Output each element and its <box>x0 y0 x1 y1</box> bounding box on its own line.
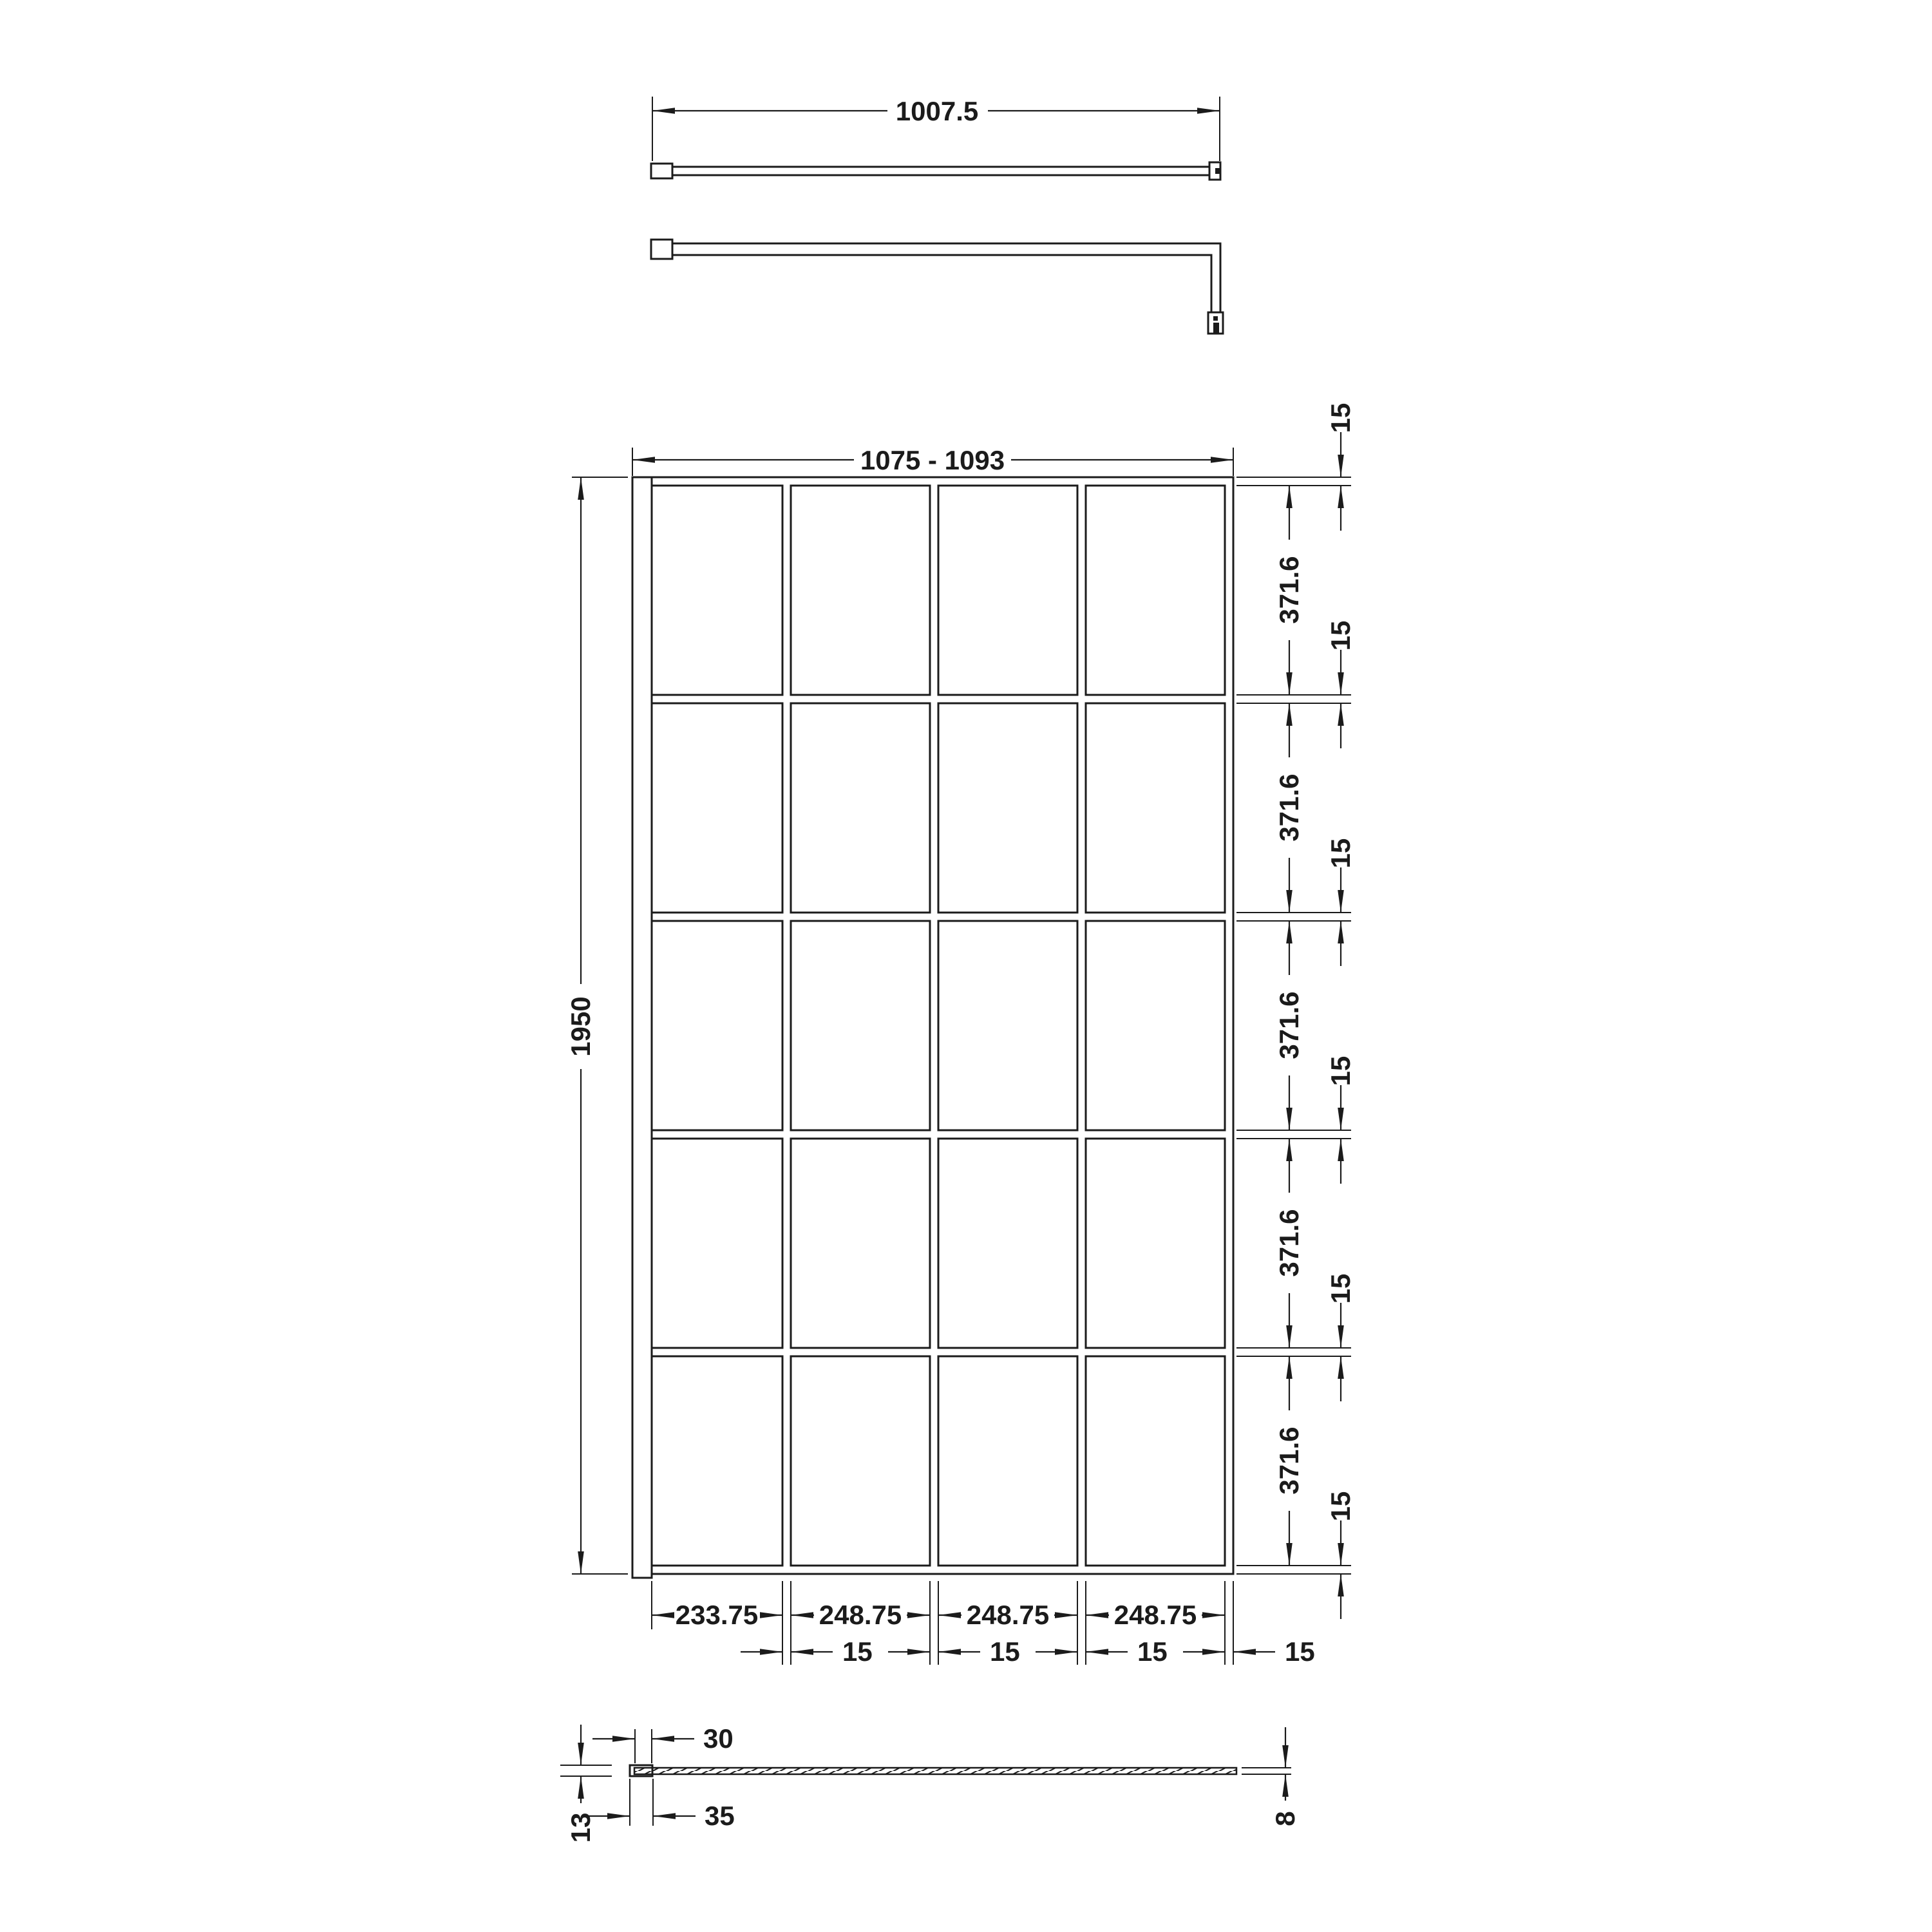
dim-text-rail: 15 <box>1325 1492 1356 1522</box>
dim-text-rail: 15 <box>1325 1056 1356 1086</box>
glass-pane <box>938 486 1077 695</box>
glass-pane <box>791 703 930 913</box>
support-arm-tube <box>672 243 1220 312</box>
glass-pane <box>791 1139 930 1348</box>
dim-text-rail: 15 <box>1325 403 1356 433</box>
dim-text-panel-width: 248.75 <box>967 1600 1049 1630</box>
dim-text-overall-width: 1075 - 1093 <box>860 445 1005 475</box>
dim-text-mullion: 15 <box>990 1636 1020 1667</box>
dim-text-bar-width: 1007.5 <box>896 96 978 126</box>
glass-pane <box>652 1356 782 1566</box>
glass-pane <box>1086 1139 1225 1348</box>
dim-text-mullion: 15 <box>842 1636 873 1667</box>
height-dimension: 1950 <box>565 477 628 1574</box>
glass-pane <box>652 486 782 695</box>
glass-pane <box>1086 703 1225 913</box>
dim-text-channel-opening: 30 <box>703 1723 734 1754</box>
glass-pane <box>938 703 1077 913</box>
glass-pane <box>1086 486 1225 695</box>
wall-fixing-block <box>651 240 672 259</box>
support-bar-tube <box>672 167 1209 175</box>
rail-thickness-dimensions: 15 15 15 15 15 15 <box>1325 403 1356 1619</box>
profile-plan-view: 30 35 13 8 <box>560 1723 1300 1842</box>
dim-text-channel-depth: 13 <box>565 1813 596 1843</box>
glass-panes <box>652 486 1225 1566</box>
dim-text-mullion: 15 <box>1137 1636 1168 1667</box>
dim-text-panel-width: 233.75 <box>676 1600 758 1630</box>
drawing-page: 1007.5 1075 - 1093 <box>0 0 1932 1932</box>
glass-pane <box>791 921 930 1130</box>
dim-text-panel-height: 371.6 <box>1274 773 1304 841</box>
glass-pane <box>1086 1356 1225 1566</box>
dim-text-panel-height: 371.6 <box>1274 1209 1304 1276</box>
glass-pane <box>652 1139 782 1348</box>
glass-pane <box>652 921 782 1130</box>
glass-pane <box>791 1356 930 1566</box>
dim-text-channel-width: 35 <box>705 1801 735 1831</box>
dim-text-mullion: 15 <box>1285 1636 1315 1667</box>
clamp-slot <box>1213 323 1219 334</box>
dim-text-panel-height: 371.6 <box>1274 991 1304 1059</box>
glass-pane <box>938 1139 1077 1348</box>
support-bar-top-view: 1007.5 <box>651 96 1220 180</box>
wall-fixing-block <box>651 164 672 178</box>
glass-pane <box>938 921 1077 1130</box>
dim-text-panel-width: 248.75 <box>819 1600 902 1630</box>
screen-front-view: 1075 - 1093 <box>565 403 1356 1667</box>
dim-text-overall-height: 1950 <box>565 996 596 1056</box>
wall-channel-profile <box>632 477 652 1578</box>
dim-text-panel-width: 248.75 <box>1114 1600 1197 1630</box>
bracket-notch <box>1215 168 1220 174</box>
mullion-width-dimensions: 15 15 15 15 <box>741 1636 1315 1667</box>
glass-pane <box>652 703 782 913</box>
glass-pane <box>791 486 930 695</box>
glass-panel-section <box>634 1768 1236 1774</box>
dim-text-rail: 15 <box>1325 1274 1356 1304</box>
dim-text-panel-height: 371.6 <box>1274 1426 1304 1494</box>
dim-text-panel-height: 371.6 <box>1274 556 1304 623</box>
dim-text-rail: 15 <box>1325 621 1356 651</box>
panel-height-dimensions: 371.6 371.6 371.6 371.6 371.6 <box>1274 486 1304 1566</box>
support-bar-side-view <box>651 240 1223 334</box>
technical-drawing: 1007.5 1075 - 1093 <box>0 0 1932 1932</box>
glass-pane <box>938 1356 1077 1566</box>
dim-text-rail: 15 <box>1325 838 1356 869</box>
clamp-screw <box>1213 316 1218 321</box>
glass-pane <box>1086 921 1225 1130</box>
dim-text-glass-thickness: 8 <box>1270 1811 1300 1826</box>
